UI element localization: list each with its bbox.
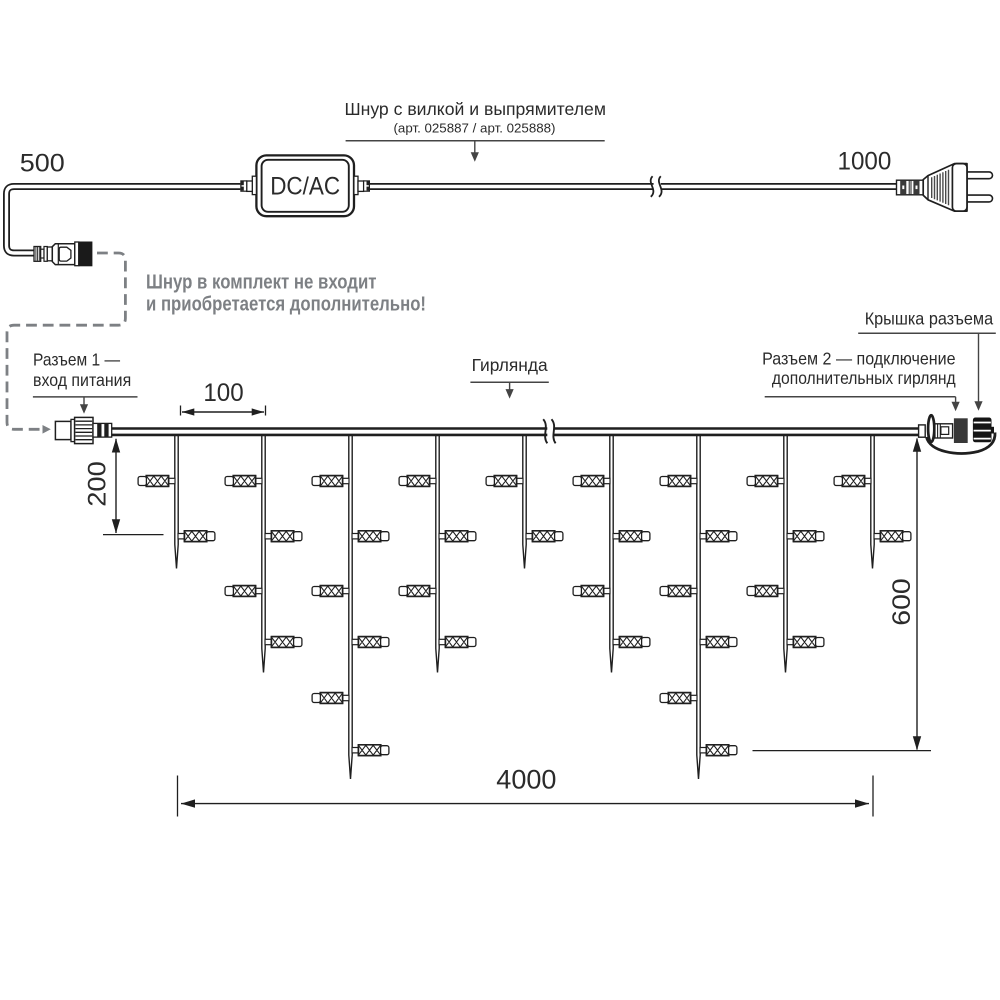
svg-text:200: 200: [84, 461, 112, 507]
svg-text:Разъем 2 — подключение: Разъем 2 — подключение: [762, 349, 956, 369]
svg-text:вход питания: вход питания: [33, 370, 131, 390]
svg-text:Крышка разъема: Крышка разъема: [865, 309, 993, 329]
svg-text:и приобретается дополнительно!: и приобретается дополнительно!: [146, 294, 426, 316]
svg-text:Шнур с вилкой и выпрямителем: Шнур с вилкой и выпрямителем: [344, 99, 606, 119]
svg-text:4000: 4000: [496, 765, 556, 795]
svg-text:Гирлянда: Гирлянда: [472, 355, 548, 375]
svg-text:500: 500: [20, 150, 65, 178]
svg-text:дополнительных гирлянд: дополнительных гирлянд: [772, 368, 956, 388]
svg-text:(арт. 025887 / арт. 025888): (арт. 025887 / арт. 025888): [394, 120, 556, 135]
svg-text:1000: 1000: [838, 148, 892, 176]
svg-text:100: 100: [203, 379, 243, 407]
svg-text:Шнур в комплект не входит: Шнур в комплект не входит: [146, 272, 377, 294]
svg-text:DC/AC: DC/AC: [270, 172, 340, 200]
svg-text:Разъем 1 —: Разъем 1 —: [33, 350, 120, 370]
svg-text:600: 600: [888, 578, 916, 626]
